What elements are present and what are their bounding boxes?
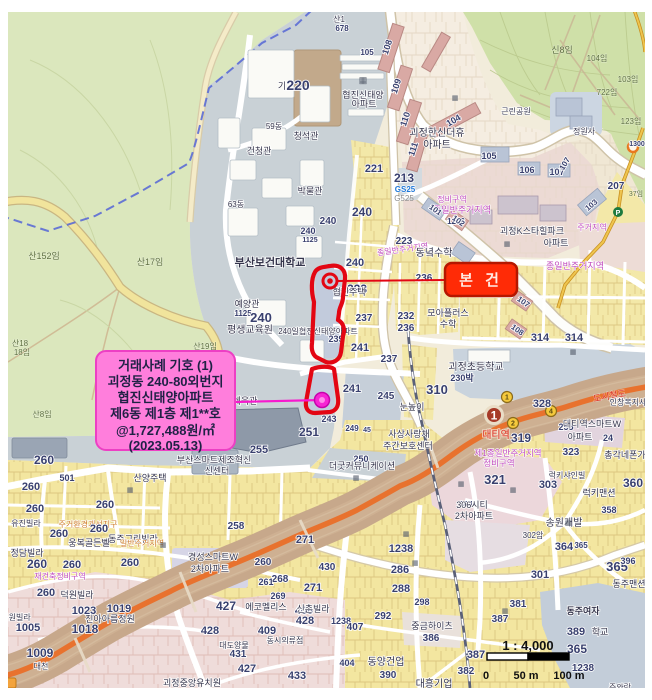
svg-text:럭키샤인빌: 럭키샤인빌 bbox=[549, 470, 586, 480]
svg-text:괴정중앙유치원: 괴정중앙유치원 bbox=[163, 677, 221, 688]
svg-text:대도양물: 대도양물 bbox=[219, 641, 248, 650]
svg-text:협진주택: 협진주택 bbox=[332, 286, 365, 297]
svg-text:104임: 104임 bbox=[587, 54, 608, 63]
svg-text:동주맨션: 동주맨션 bbox=[612, 579, 645, 589]
svg-text:45: 45 bbox=[363, 427, 371, 434]
svg-text:괴정한신더휴: 괴정한신더휴 bbox=[409, 127, 464, 139]
svg-text:365: 365 bbox=[567, 642, 587, 656]
svg-text:389: 389 bbox=[567, 626, 585, 638]
svg-text:387: 387 bbox=[467, 649, 485, 661]
svg-text:예양관: 예양관 bbox=[235, 299, 260, 309]
svg-text:381: 381 bbox=[510, 599, 527, 610]
svg-text:재건축정비구역: 재건축정비구역 bbox=[34, 571, 86, 581]
svg-text:319: 319 bbox=[511, 431, 531, 445]
svg-text:63동: 63동 bbox=[228, 200, 244, 209]
svg-text:260: 260 bbox=[90, 523, 108, 535]
svg-text:2차아파트: 2차아파트 bbox=[455, 510, 493, 521]
svg-text:정비구역: 정비구역 bbox=[483, 458, 514, 468]
svg-text:▦: ▦ bbox=[504, 241, 511, 248]
svg-text:인창복지사: 인창복지사 bbox=[610, 397, 647, 407]
svg-text:에코멜리스: 에코멜리스 bbox=[245, 601, 286, 612]
svg-text:거래사례 기호 (1): 거래사례 기호 (1) bbox=[118, 358, 213, 373]
svg-text:220: 220 bbox=[286, 77, 310, 93]
svg-text:245: 245 bbox=[378, 391, 395, 402]
svg-text:260: 260 bbox=[63, 559, 81, 571]
svg-text:제1종일반주거지역: 제1종일반주거지역 bbox=[474, 448, 541, 458]
svg-text:1 : 4,000: 1 : 4,000 bbox=[502, 638, 553, 653]
svg-text:동주여자: 동주여자 bbox=[566, 605, 600, 616]
svg-text:모아플러스: 모아플러스 bbox=[427, 308, 468, 318]
svg-text:314: 314 bbox=[531, 332, 550, 344]
svg-text:303: 303 bbox=[539, 479, 557, 491]
svg-text:▦: ▦ bbox=[502, 608, 509, 615]
svg-text:271: 271 bbox=[296, 534, 314, 546]
svg-text:382: 382 bbox=[458, 666, 475, 677]
svg-text:269: 269 bbox=[270, 591, 285, 601]
svg-text:105: 105 bbox=[360, 48, 374, 57]
svg-text:260: 260 bbox=[26, 503, 44, 515]
svg-text:237: 237 bbox=[356, 313, 373, 324]
svg-text:314: 314 bbox=[565, 332, 584, 344]
svg-text:중금하이츠: 중금하이츠 bbox=[411, 621, 452, 631]
svg-text:산152임: 산152임 bbox=[28, 250, 60, 261]
svg-text:산양주택: 산양주택 bbox=[133, 473, 166, 483]
svg-text:1018: 1018 bbox=[72, 622, 99, 636]
svg-text:240: 240 bbox=[346, 257, 364, 269]
svg-text:260: 260 bbox=[121, 557, 139, 569]
svg-text:1300: 1300 bbox=[629, 141, 645, 148]
svg-text:GS25: GS25 bbox=[395, 185, 416, 194]
svg-text:678: 678 bbox=[335, 24, 349, 33]
svg-text:240: 240 bbox=[320, 216, 337, 227]
svg-text:390: 390 bbox=[380, 670, 397, 681]
svg-text:328: 328 bbox=[533, 398, 551, 410]
svg-text:404: 404 bbox=[339, 658, 354, 668]
svg-text:▦: ▦ bbox=[160, 542, 167, 549]
svg-text:▦: ▦ bbox=[412, 560, 419, 567]
svg-text:신8임: 신8임 bbox=[551, 44, 573, 55]
svg-text:평생교육원: 평생교육원 bbox=[227, 324, 273, 336]
svg-text:정비구역: 정비구역 bbox=[437, 194, 466, 204]
svg-text:근린공원: 근린공원 bbox=[501, 106, 530, 116]
svg-text:아파트: 아파트 bbox=[423, 139, 451, 151]
svg-text:396: 396 bbox=[620, 556, 635, 566]
svg-text:P: P bbox=[616, 210, 621, 217]
svg-text:323: 323 bbox=[563, 447, 580, 458]
svg-text:240: 240 bbox=[352, 205, 372, 219]
svg-text:59동: 59동 bbox=[266, 122, 282, 131]
svg-text:105: 105 bbox=[481, 151, 496, 161]
svg-text:2: 2 bbox=[511, 421, 515, 428]
svg-text:302암: 302암 bbox=[523, 530, 544, 540]
svg-text:제6동 제1층 제1**호: 제6동 제1층 제1**호 bbox=[110, 406, 221, 421]
svg-text:292: 292 bbox=[375, 611, 392, 622]
svg-text:261: 261 bbox=[258, 577, 273, 587]
svg-text:유진빌라: 유진빌라 bbox=[11, 518, 41, 528]
svg-text:240: 240 bbox=[250, 310, 272, 325]
svg-text:213: 213 bbox=[394, 171, 414, 185]
svg-text:본 건: 본 건 bbox=[459, 272, 503, 289]
svg-text:1023: 1023 bbox=[72, 605, 96, 617]
svg-text:박물관: 박물관 bbox=[298, 186, 323, 196]
svg-text:1238: 1238 bbox=[389, 543, 413, 555]
svg-text:123임: 123임 bbox=[621, 117, 642, 126]
svg-text:럭키맨션: 럭키맨션 bbox=[582, 487, 615, 498]
svg-text:501: 501 bbox=[59, 473, 74, 483]
svg-text:18임: 18임 bbox=[14, 348, 30, 357]
svg-text:(2023.05.13): (2023.05.13) bbox=[129, 438, 203, 453]
svg-text:아파트: 아파트 bbox=[544, 238, 569, 248]
svg-text:260: 260 bbox=[96, 499, 114, 511]
svg-text:대티역스마트W: 대티역스마트W bbox=[563, 419, 622, 429]
svg-text:106: 106 bbox=[519, 165, 534, 175]
svg-text:722임: 722임 bbox=[597, 88, 618, 97]
svg-text:100 m: 100 m bbox=[553, 670, 584, 682]
svg-text:정원사: 정원사 bbox=[573, 126, 596, 136]
svg-text:▦: ▦ bbox=[570, 349, 577, 356]
svg-text:433: 433 bbox=[288, 670, 306, 682]
svg-text:건청관: 건청관 bbox=[247, 146, 272, 156]
svg-text:협진신태양아파트: 협진신태양아파트 bbox=[118, 390, 214, 405]
svg-text:@1,727,488원/㎡: @1,727,488원/㎡ bbox=[116, 423, 215, 438]
svg-text:387: 387 bbox=[492, 614, 509, 625]
svg-text:더굿커뮤니케이션: 더굿커뮤니케이션 bbox=[329, 461, 395, 471]
svg-text:428: 428 bbox=[296, 615, 314, 627]
svg-text:310: 310 bbox=[426, 382, 448, 397]
svg-text:386: 386 bbox=[423, 633, 440, 644]
svg-text:사상사랑채: 사상사랑채 bbox=[388, 428, 429, 439]
svg-text:207: 207 bbox=[608, 181, 625, 192]
svg-text:대천: 대천 bbox=[34, 661, 49, 671]
svg-text:255: 255 bbox=[250, 444, 268, 456]
svg-text:1125: 1125 bbox=[302, 237, 317, 244]
svg-text:230박: 230박 bbox=[450, 372, 474, 383]
svg-text:240: 240 bbox=[300, 226, 315, 236]
svg-text:신센터: 신센터 bbox=[205, 466, 230, 476]
svg-text:431: 431 bbox=[230, 649, 247, 660]
svg-text:▦: ▦ bbox=[565, 520, 572, 527]
svg-text:종일반주거지역: 종일반주거지역 bbox=[546, 261, 604, 271]
svg-text:249: 249 bbox=[345, 424, 359, 433]
svg-text:덕원빌라: 덕원빌라 bbox=[60, 590, 94, 600]
svg-text:251: 251 bbox=[299, 425, 319, 439]
svg-text:301: 301 bbox=[531, 569, 549, 581]
svg-text:괴정동 240-80외번지: 괴정동 240-80외번지 bbox=[108, 374, 224, 389]
svg-text:학교: 학교 bbox=[592, 627, 609, 637]
svg-text:1019: 1019 bbox=[107, 603, 131, 615]
svg-text:산18: 산18 bbox=[12, 338, 29, 348]
svg-text:아파트: 아파트 bbox=[568, 432, 593, 442]
svg-text:268: 268 bbox=[272, 574, 289, 585]
svg-text:298: 298 bbox=[414, 597, 429, 607]
svg-text:321: 321 bbox=[484, 472, 506, 487]
svg-text:237: 237 bbox=[381, 354, 398, 365]
svg-text:271: 271 bbox=[304, 582, 322, 594]
svg-text:1: 1 bbox=[505, 395, 509, 402]
svg-text:대티역: 대티역 bbox=[482, 428, 510, 441]
svg-text:눈높이: 눈높이 bbox=[400, 402, 425, 412]
svg-text:260: 260 bbox=[34, 453, 54, 467]
svg-text:427: 427 bbox=[216, 599, 236, 613]
svg-text:260: 260 bbox=[27, 557, 47, 571]
svg-text:주간보호센터: 주간보호센터 bbox=[383, 441, 433, 451]
svg-text:260: 260 bbox=[255, 557, 272, 568]
svg-text:430: 430 bbox=[319, 562, 336, 573]
svg-text:▦: ▦ bbox=[359, 75, 368, 85]
svg-text:0: 0 bbox=[483, 670, 489, 682]
svg-text:365: 365 bbox=[574, 541, 588, 550]
svg-text:▦: ▦ bbox=[458, 481, 465, 488]
svg-text:1005: 1005 bbox=[16, 622, 40, 634]
svg-text:288: 288 bbox=[392, 583, 410, 595]
svg-text:50 m: 50 m bbox=[513, 670, 538, 682]
svg-text:37임: 37임 bbox=[629, 190, 643, 198]
svg-text:286: 286 bbox=[391, 564, 409, 576]
svg-text:24: 24 bbox=[603, 433, 613, 443]
svg-text:산1: 산1 bbox=[333, 14, 345, 24]
svg-text:기: 기 bbox=[278, 81, 286, 91]
svg-text:청석관: 청석관 bbox=[294, 131, 319, 141]
svg-text:232: 232 bbox=[398, 311, 415, 322]
svg-text:아파트: 아파트 bbox=[352, 99, 377, 109]
svg-text:1009: 1009 bbox=[27, 646, 54, 660]
svg-text:▦: ▦ bbox=[452, 95, 459, 102]
svg-text:236: 236 bbox=[416, 273, 433, 284]
svg-text:동시의류점: 동시의류점 bbox=[267, 635, 304, 645]
svg-text:G525: G525 bbox=[394, 194, 414, 203]
svg-text:산8임: 산8임 bbox=[32, 409, 51, 419]
svg-text:260: 260 bbox=[50, 528, 68, 540]
svg-text:주거지역: 주거지역 bbox=[577, 222, 606, 232]
svg-text:경성스마트W: 경성스마트W bbox=[188, 551, 238, 562]
svg-text:산17임: 산17임 bbox=[137, 256, 164, 267]
svg-text:358: 358 bbox=[601, 505, 616, 515]
svg-text:243: 243 bbox=[321, 414, 336, 424]
svg-text:241: 241 bbox=[343, 383, 361, 395]
svg-text:일반주거지역: 일반주거지역 bbox=[120, 538, 164, 548]
svg-text:1: 1 bbox=[491, 409, 498, 423]
svg-text:260: 260 bbox=[37, 587, 55, 599]
svg-text:동녘수학: 동녘수학 bbox=[416, 247, 453, 259]
svg-text:221: 221 bbox=[365, 163, 383, 175]
svg-text:364: 364 bbox=[555, 541, 574, 553]
svg-text:산19임: 산19임 bbox=[193, 341, 217, 351]
svg-text:동양건업: 동양건업 bbox=[368, 655, 405, 668]
svg-text:2차아파트: 2차아파트 bbox=[191, 563, 229, 574]
svg-text:괴정초등학교: 괴정초등학교 bbox=[448, 361, 503, 373]
svg-text:▦: ▦ bbox=[403, 531, 410, 538]
svg-text:괴정K스타힐파크: 괴정K스타힐파크 bbox=[500, 225, 564, 236]
svg-text:407: 407 bbox=[347, 622, 364, 633]
svg-text:258: 258 bbox=[228, 521, 245, 532]
svg-text:103임: 103임 bbox=[618, 75, 639, 84]
svg-text:241: 241 bbox=[351, 342, 369, 354]
svg-text:▦: ▦ bbox=[510, 487, 517, 494]
svg-text:223: 223 bbox=[396, 236, 413, 247]
svg-text:427: 427 bbox=[238, 663, 256, 675]
svg-text:236: 236 bbox=[398, 323, 415, 334]
svg-text:360: 360 bbox=[623, 476, 643, 490]
svg-text:▦: ▦ bbox=[353, 475, 360, 482]
svg-text:부산스마트제조혁신: 부산스마트제조혁신 bbox=[177, 455, 252, 465]
svg-text:총각네폰가: 총각네폰가 bbox=[604, 449, 645, 460]
svg-text:428: 428 bbox=[201, 625, 219, 637]
svg-text:260: 260 bbox=[22, 481, 40, 493]
svg-text:▦: ▦ bbox=[127, 487, 134, 494]
svg-text:306시티: 306시티 bbox=[456, 500, 488, 510]
svg-text:신촌빌라: 신촌빌라 bbox=[296, 604, 330, 614]
svg-text:웅복골든벨: 웅복골든벨 bbox=[68, 538, 109, 548]
svg-text:부산보건대학교: 부산보건대학교 bbox=[235, 255, 306, 269]
svg-text:수학: 수학 bbox=[440, 319, 457, 329]
